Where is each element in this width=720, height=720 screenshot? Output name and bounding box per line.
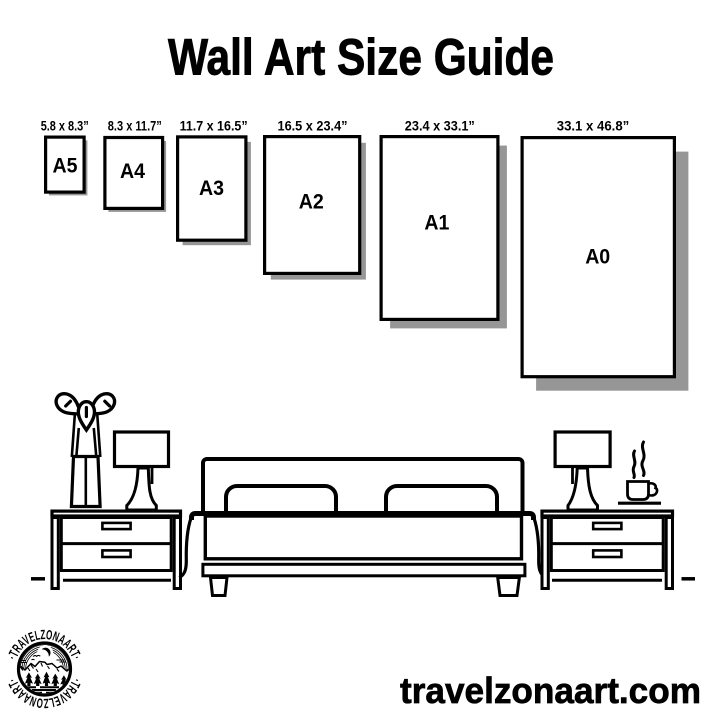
svg-text:8.3 x 11.7”: 8.3 x 11.7” (108, 119, 162, 134)
svg-text:Wall Art Size Guide: Wall Art Size Guide (168, 29, 554, 86)
svg-text:A1: A1 (424, 210, 449, 234)
svg-text:5.8 x 8.3”: 5.8 x 8.3” (41, 119, 89, 134)
svg-text:33.1 x 46.8”: 33.1 x 46.8” (557, 119, 630, 134)
svg-text:16.5 x 23.4”: 16.5 x 23.4” (278, 119, 348, 134)
svg-text:travelzonaart.com: travelzonaart.com (400, 670, 701, 711)
svg-text:11.7 x 16.5”: 11.7 x 16.5” (180, 119, 248, 134)
svg-text:A3: A3 (199, 176, 224, 200)
svg-text:A2: A2 (299, 190, 324, 214)
svg-text:A4: A4 (120, 159, 145, 183)
svg-text:A0: A0 (585, 244, 610, 268)
svg-text:23.4 x 33.1”: 23.4 x 33.1” (405, 119, 475, 134)
svg-text:A5: A5 (53, 153, 78, 177)
